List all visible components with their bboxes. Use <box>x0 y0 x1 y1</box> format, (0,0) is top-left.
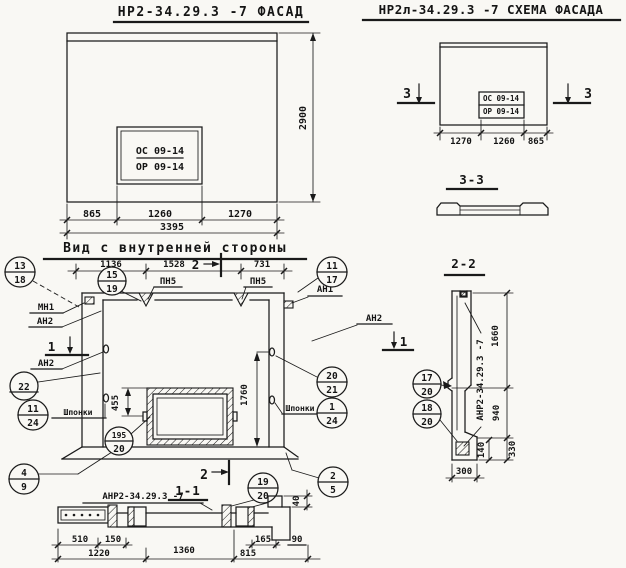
shponka-key <box>104 345 109 353</box>
shponka-key <box>270 396 275 404</box>
schema-title: НР2л-34.29.3 -7 СХЕМА ФАСАДА <box>379 2 604 17</box>
section-mark-1-right: 1 <box>383 332 413 350</box>
callout-15-19: 15 19 <box>98 267 126 295</box>
shponka-key <box>104 394 109 402</box>
section-3-3: 3-3 <box>437 172 548 215</box>
dim-label: 1260 <box>148 209 172 220</box>
svg-text:1: 1 <box>329 402 335 413</box>
facade-title: НР2-34.29.3 -7 ФАСАД <box>118 5 305 20</box>
dim-label: 1270 <box>228 209 252 220</box>
dim-label: 865 <box>83 209 101 220</box>
svg-text:2: 2 <box>200 468 208 483</box>
svg-text:20: 20 <box>421 387 433 398</box>
dim-label: 1528 <box>163 260 185 270</box>
dim-label: 165 <box>255 535 271 545</box>
svg-text:24: 24 <box>27 418 39 429</box>
section-1-1-title: 1-1 <box>175 483 201 498</box>
callout-2-5: 2 5 <box>318 467 348 497</box>
svg-text:13: 13 <box>14 261 26 272</box>
svg-text:24: 24 <box>326 416 338 427</box>
shponka-key <box>270 348 275 356</box>
dim-label: 1760 <box>240 384 250 406</box>
embed-notch-left <box>139 293 153 306</box>
svg-text:20: 20 <box>113 444 125 455</box>
svg-text:17: 17 <box>421 373 432 384</box>
section-3-3-title: 3-3 <box>459 172 485 187</box>
dim-label: 455 <box>111 395 121 411</box>
dim-label: 1220 <box>88 549 110 559</box>
dim-label: 300 <box>456 467 472 477</box>
panel-drawing: НР2-34.29.3 -7 ФАСАД ОС 09-14 ОР 09-14 8… <box>0 0 626 568</box>
dim-label: 90 <box>292 535 303 545</box>
svg-text:22: 22 <box>18 382 29 393</box>
callout-195-20: 195 20 <box>105 427 133 455</box>
label-pn5-left: ПН5 <box>160 277 176 287</box>
callout-17-20: 17 20 <box>413 370 441 398</box>
label-pn5-right: ПН5 <box>250 277 266 287</box>
callout-11-17: 11 17 <box>317 257 347 287</box>
callout-18-20: 18 20 <box>413 400 441 428</box>
svg-text:195: 195 <box>112 431 127 440</box>
dim-label: 510 <box>72 535 88 545</box>
dim-label: 1260 <box>493 137 515 147</box>
callout-13-18: 13 18 <box>5 257 35 287</box>
label-shponki-right: Шпонки <box>286 404 315 413</box>
dim-label: 150 <box>105 535 121 545</box>
corner-embed-an1 <box>284 301 293 308</box>
svg-text:19: 19 <box>257 477 269 488</box>
label-an2-right: АН2 <box>366 314 382 324</box>
svg-text:11: 11 <box>27 404 39 415</box>
embed-plate <box>108 505 117 527</box>
svg-text:19: 19 <box>106 284 118 295</box>
dim-label-total: 3395 <box>160 222 184 233</box>
section-1-1: АНР2-34.29.3 -7 1-1 510 150 165 90 1220 … <box>52 483 320 562</box>
callout-11-24: 11 24 <box>18 400 48 430</box>
dim-label: 940 <box>492 405 502 421</box>
svg-text:17: 17 <box>326 275 337 286</box>
opening-mark-top: ОС 09-14 <box>483 94 520 103</box>
section-2-2: 2-2 АНР2-34.29.3 -7 1660 940 330 140 300… <box>413 256 518 482</box>
callout-20-21: 20 21 <box>317 367 347 397</box>
svg-text:9: 9 <box>21 482 27 493</box>
svg-text:21: 21 <box>326 385 338 396</box>
facade-elevation-view: НР2-34.29.3 -7 ФАСАД ОС 09-14 ОР 09-14 8… <box>60 5 320 239</box>
callout-19-20: 19 20 <box>248 473 278 503</box>
dim-label: 40 <box>292 496 302 507</box>
svg-text:18: 18 <box>14 275 26 286</box>
callout-4-9: 4 9 <box>9 464 39 494</box>
dim-label-height: 2900 <box>298 106 309 130</box>
section-mark-2-bottom: 2 <box>200 461 229 484</box>
svg-text:1: 1 <box>400 334 409 349</box>
drawing-sheet: НР2-34.29.3 -7 ФАСАД ОС 09-14 ОР 09-14 8… <box>0 0 626 568</box>
dim-label: 1660 <box>491 325 501 347</box>
inner-view-title: Вид с внутренней стороны <box>63 241 287 256</box>
svg-text:2: 2 <box>330 471 336 482</box>
svg-text:3: 3 <box>403 87 411 102</box>
corner-embed-mn1 <box>85 297 94 304</box>
svg-text:11: 11 <box>326 261 338 272</box>
opening-mark-top: ОС 09-14 <box>136 146 184 157</box>
svg-text:20: 20 <box>326 371 338 382</box>
section-mark-2-top: 2 <box>192 254 221 276</box>
svg-text:18: 18 <box>421 403 433 414</box>
section-mark-3-left: 3 <box>398 84 434 104</box>
opening-mark-bottom: ОР 09-14 <box>483 107 520 116</box>
dim-label: 865 <box>528 137 544 147</box>
svg-text:3: 3 <box>584 87 592 102</box>
opening-mark-bottom: ОР 09-14 <box>136 162 184 173</box>
label-mn1: МН1 <box>38 303 54 313</box>
svg-text:20: 20 <box>257 491 269 502</box>
facade-schema-view: НР2л-34.29.3 -7 СХЕМА ФАСАДА ОС 09-14 ОР… <box>363 2 620 147</box>
dim-label: 1360 <box>173 546 195 556</box>
svg-text:2: 2 <box>192 257 201 272</box>
embed-plate <box>222 505 231 527</box>
svg-text:4: 4 <box>21 468 27 479</box>
svg-text:20: 20 <box>421 417 433 428</box>
svg-text:15: 15 <box>106 270 118 281</box>
callout-1-24: 1 24 <box>317 398 347 428</box>
dim-label: 731 <box>254 260 270 270</box>
section-2-2-label: АНР2-34.29.3 -7 <box>476 339 486 420</box>
inner-side-view: Вид с внутренней стороны 1136 1528 731 2… <box>29 241 413 510</box>
label-an2-left-top: АН2 <box>37 317 53 327</box>
embed-notch-right <box>234 293 248 306</box>
foot-embed <box>456 442 469 455</box>
dim-label: 140 <box>477 442 487 458</box>
section-mark-3-right: 3 <box>554 84 592 104</box>
label-shponki-left: Шпонки <box>64 408 93 417</box>
section-2-2-title: 2-2 <box>451 256 477 271</box>
callout-22: 22 <box>10 372 38 400</box>
svg-text:1: 1 <box>48 339 57 354</box>
svg-text:5: 5 <box>330 485 336 496</box>
dim-label: 815 <box>240 549 256 559</box>
dim-label: 1270 <box>450 137 472 147</box>
label-an2-left-mid: АН2 <box>38 359 54 369</box>
dim-label: 330 <box>508 441 518 457</box>
